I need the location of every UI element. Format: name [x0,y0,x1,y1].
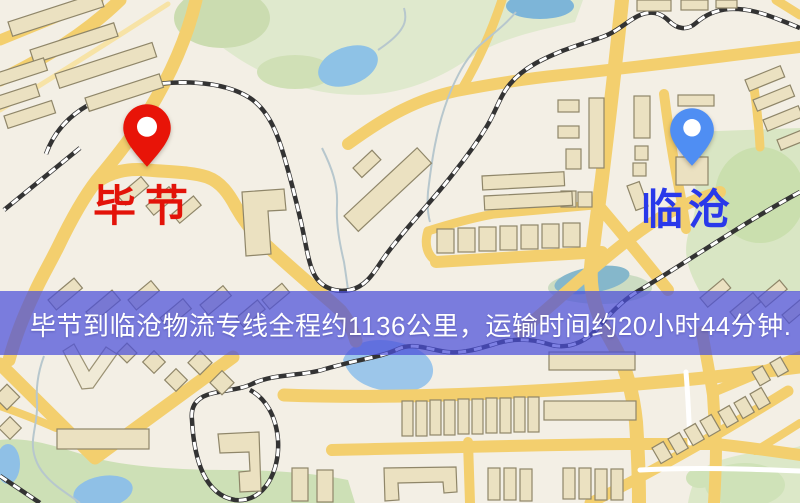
destination-pin-hole [683,119,700,136]
route-info-banner: 毕节到临沧物流专线全程约1136公里，运输时间约20小时44分钟. [0,291,800,355]
origin-city-label: 毕节 [93,172,197,234]
destination-pin-shape [670,108,714,166]
map-viewport[interactable]: 毕节 临沧 毕节到临沧物流专线全程约1136公里，运输时间约20小时44分钟. [0,0,800,503]
origin-pin-hole [137,117,157,137]
map-canvas[interactable] [0,0,800,503]
route-info-text: 毕节到临沧物流专线全程约1136公里，运输时间约20小时44分钟. [30,311,791,341]
destination-pin[interactable] [669,107,715,167]
destination-city-label: 临沧 [641,176,735,237]
origin-pin[interactable] [122,103,172,168]
